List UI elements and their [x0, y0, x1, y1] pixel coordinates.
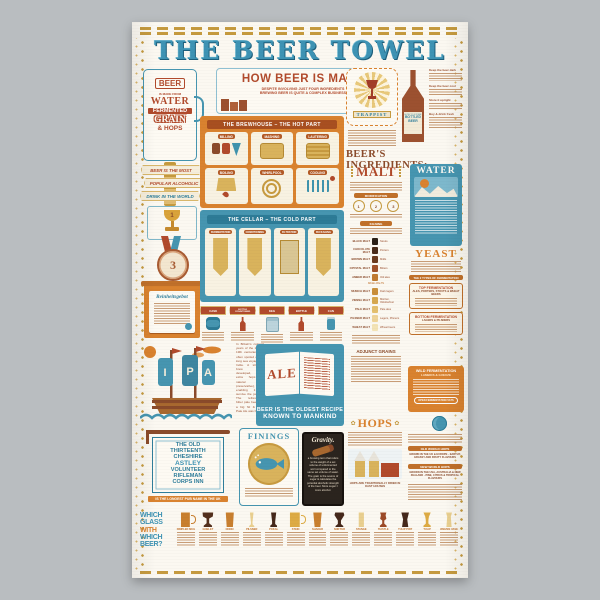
oast-caption: HOPS ARE TRADITIONALLY DRIED IN OAST HOU… — [346, 482, 404, 489]
bottom-fermentation-styles: LAGERS & PILSNERS — [411, 319, 461, 322]
malt-name: VIENNA MALT — [346, 299, 370, 302]
malt-style: Pale ales — [380, 308, 404, 311]
glass-item: GOBLET — [197, 510, 219, 546]
malt-word: MALT — [356, 164, 396, 180]
gravity-text: a brewing term that refers to the weight… — [307, 457, 339, 492]
conditioning-tank-icon — [247, 238, 262, 276]
step-number: 2 — [375, 204, 377, 209]
mountains-icon — [414, 186, 458, 197]
chalice-icon — [364, 79, 380, 101]
cellar-step-packaging: PACKAGING — [308, 228, 339, 296]
malt-style: Porters — [380, 249, 404, 252]
plinth: Reinheitsgebot — [144, 284, 200, 338]
malt-swatch — [372, 238, 378, 245]
trophy-base — [165, 227, 179, 231]
malt-row: MUNICH MALTDark lagers — [346, 287, 406, 296]
step-number: 1 — [358, 204, 360, 209]
top-fermentation-box: TOP FERMENTATION ALES, PORTERS, STOUTS &… — [409, 283, 463, 309]
glasses-heading-line: WITH — [140, 527, 173, 534]
sail-letter: A — [204, 367, 212, 379]
hop-cone-icon: ✿ — [394, 420, 399, 427]
oast-tower — [355, 461, 365, 477]
bottom-fermentation-box: BOTTOM FERMENTATION LAGERS & PILSNERS — [409, 312, 463, 335]
brewhouse-title: THE BREWHOUSE – THE HOT PART — [207, 120, 337, 129]
new-world-flavour: PINE, CITRUS & TROPICAL FLAVOURS — [425, 474, 459, 480]
glasses-heading-line: BEER? — [140, 541, 173, 548]
micro-text — [429, 117, 462, 129]
micro-text — [320, 332, 342, 342]
trophy-number: 1 — [170, 213, 173, 219]
seal-badge — [185, 323, 192, 330]
gravity-title: Gravity. — [304, 436, 342, 444]
bottle-icon — [240, 317, 246, 331]
sun-icon — [420, 179, 429, 188]
glasses-heading-line: WHICH — [140, 512, 173, 519]
towel-title: THE BEER TOWEL — [146, 36, 454, 65]
brewery-factory-icon — [221, 99, 251, 111]
step-label: BOILING — [218, 170, 235, 175]
wheat-sprig-icon — [351, 166, 354, 178]
micro-text — [415, 298, 457, 306]
finings-panel: FININGS — [239, 428, 299, 506]
glass-item: PILSNER — [241, 510, 263, 546]
malt-swatch — [372, 256, 378, 263]
packaging-label: CAN — [318, 306, 344, 315]
photo-background: THE BEER TOWEL BEER IS MADE FROM WATER F… — [0, 0, 600, 600]
globe-icon — [432, 416, 447, 431]
glasses-heading: WHICH GLASS WITH WHICH BEER? — [140, 512, 173, 549]
trophy-bowl: 1 — [164, 210, 180, 221]
glass-name: PILSNER — [241, 529, 263, 532]
glass-name: POKAL — [263, 529, 285, 532]
micro-text — [350, 228, 402, 234]
malt-style: Lagers, Pilsners — [380, 317, 404, 320]
storage-tip: Store it upright — [429, 98, 462, 109]
gravity-bottle-icon — [311, 444, 334, 457]
micro-text — [290, 332, 312, 342]
micro-text — [350, 214, 402, 219]
tip-header: Store it upright — [429, 98, 462, 102]
micro-text — [199, 532, 217, 546]
glass-item: DIMPLED MUG — [175, 510, 197, 546]
bottle-label-main: BOTTLED BEER — [404, 116, 422, 123]
malt-style: Bitters — [380, 267, 404, 270]
malt-name: BLACK MALT — [346, 240, 370, 243]
bottle-icon — [298, 317, 304, 331]
step-circle: 2 — [370, 200, 382, 212]
ribbon-world: DRINK IN THE WORLD — [140, 191, 200, 201]
micro-text — [440, 532, 458, 546]
packaging-label: KEG — [259, 306, 285, 315]
beer-ingredients-mug-lockup: BEER IS MADE FROM WATER FERMENTED GRAIN … — [143, 69, 197, 161]
packaging-label: CASK — [200, 306, 226, 315]
micro-text — [261, 334, 283, 344]
malt-swatch — [372, 315, 378, 322]
mug-word-beer: BEER — [155, 78, 185, 89]
medal-number: 3 — [170, 258, 176, 273]
malt-sacks-icon — [212, 143, 241, 156]
kilning-banner: KILNING — [360, 221, 392, 226]
micro-text — [418, 532, 436, 546]
brewhouse-grid: MILLING MASHING LAUTERING BOILING — [205, 132, 339, 204]
step-label: MASHING — [262, 134, 281, 139]
malt-row: BROWN MALTMilds — [346, 255, 406, 264]
trophy-icon: 1 — [161, 207, 183, 239]
step-number: 3 — [392, 204, 394, 209]
top-fermentation-styles: ALES, PORTERS, STOUTS & WHEAT BEERS — [411, 290, 461, 296]
ipa-panel: I P A In Britain's colonial years of the… — [140, 340, 264, 428]
micro-text — [352, 532, 370, 546]
border-dashes-top-1 — [140, 27, 460, 30]
malt-style: Stouts — [380, 240, 404, 243]
water-panel: WATER — [410, 164, 462, 246]
gravity-panel: Gravity. a brewing term that refers to t… — [302, 432, 344, 506]
border-dashes-bottom — [140, 571, 460, 574]
sail-letter: P — [186, 366, 193, 378]
scroll: Reinheitsgebot — [149, 291, 195, 333]
pub-line: ASTLEY — [153, 460, 223, 467]
malt-name: CHOCOLATE MALT — [346, 248, 370, 254]
glass-item: POKAL — [263, 510, 285, 546]
malt-row: VIENNA MALTMärzen, Oktoberfest — [346, 296, 406, 305]
tip-header: Buy & drink fresh — [429, 112, 462, 116]
micro-text — [413, 379, 459, 395]
step-label: MILLING — [218, 134, 235, 139]
oast-roof — [354, 451, 366, 461]
glass-item: WEIZEN VASE — [438, 510, 460, 546]
tip-header: Keep the beer cool — [429, 84, 462, 88]
brewhouse-step-milling: MILLING — [205, 132, 248, 165]
brewhouse-step-lautering: LAUTERING — [296, 132, 339, 165]
book-page-left: ALE — [265, 352, 299, 396]
tip-header: Keep the beer dark — [429, 68, 462, 72]
micro-text — [350, 182, 402, 191]
packaging-label: BOTTLE — [288, 306, 314, 315]
glass-item: NONIC — [219, 510, 241, 546]
micro-text — [154, 303, 190, 325]
yeast-word: YEAST — [408, 248, 464, 260]
glass-item: TULIP PINT — [394, 510, 416, 546]
malt-row: WHEAT MALTWheat beers — [346, 323, 406, 332]
yeast-panel: YEAST THE 2 TYPES OF FERMENTATION TOP FE… — [408, 248, 464, 362]
hops-word: HOPS — [358, 416, 393, 431]
hops-word-row: ✿ HOPS ✿ — [346, 416, 404, 431]
glass-name: STANGE — [350, 529, 372, 532]
glass-name: WEIZEN VASE — [438, 529, 460, 532]
packaging-can: CAN — [318, 306, 344, 342]
ribbon-popular: POPULAR ALCOHOLIC — [144, 178, 204, 188]
new-world-hops-sub: GROWN IN THE USA, AUSTRALIA & NEW ZEALAN… — [408, 471, 462, 481]
step-label: PACKAGING — [314, 230, 333, 234]
micro-text — [304, 357, 330, 391]
malt-word-row: MALT — [346, 164, 406, 180]
old-world-hops-banner: OLD WORLD HOPS — [408, 446, 462, 451]
glass-name: THISTLE — [372, 529, 394, 532]
micro-text — [177, 532, 195, 546]
glass-name: SNIFTER — [328, 529, 350, 532]
malt-name: WHEAT MALT — [346, 326, 370, 329]
mug-word-grain: GRAIN — [144, 115, 196, 125]
whirlpool-icon — [262, 179, 281, 198]
medal: 3 — [155, 236, 187, 282]
step-label: COOLING — [308, 170, 327, 175]
malt-swatch — [372, 324, 378, 331]
modification-steps: 1 2 3 — [350, 200, 402, 212]
step-label: LAUTERING — [306, 134, 329, 139]
sign-board: THE OLD THIRTEENTH CHESHIRE ASTLEY VOLUN… — [152, 437, 224, 493]
malt-column: MALT MODIFICATION 1 2 3 KILNING BLACK MA… — [346, 164, 406, 414]
trophy-frame: 1 — [147, 206, 197, 240]
micro-text — [351, 356, 401, 382]
ale-caption-2: KNOWN TO MANKIND — [256, 413, 344, 420]
fish-icon — [252, 454, 286, 474]
malt-style: Old ales — [380, 276, 404, 279]
malt-name: BROWN MALT — [346, 258, 370, 261]
malt-row: BLACK MALTStouts — [346, 237, 406, 246]
hop-dot-icon — [330, 176, 335, 181]
pub-caption: IS THE LONGEST PUB NAME IN THE UK — [148, 496, 228, 502]
finings-title: FININGS — [240, 431, 298, 441]
wild-fermentation-sub: LAMBICS & GUEUZE — [408, 373, 464, 377]
glass-name: TULIP PINT — [394, 529, 416, 532]
oast-tower — [369, 461, 379, 477]
brewhouse-step-cooling: COOLING — [296, 168, 339, 204]
brewhouse-step-mashing: MASHING — [251, 132, 294, 165]
packaging-keg: KEG — [259, 306, 285, 342]
hops-section: ✿ HOPS ✿ HOPS ARE TRADITIONALLY DRIED IN… — [346, 416, 464, 504]
mountain-scene — [414, 177, 458, 197]
micro-text — [265, 532, 283, 546]
mug-word-hops: & HOPS — [144, 125, 196, 132]
storage-tip: Keep the beer dark — [429, 68, 462, 81]
malt-row: PALE MALTPale ales — [346, 305, 406, 314]
cooling-coil-icon — [307, 180, 329, 192]
keg-icon — [266, 317, 279, 332]
packaging-pennant-icon — [316, 238, 331, 276]
glass-name: GOBLET — [197, 529, 219, 532]
step-circle: 1 — [353, 200, 365, 212]
sign-bracket — [146, 430, 230, 434]
ribbon-most: BEER IS THE MOST — [141, 165, 201, 175]
packaging-bottle-conditioned: BOTTLE CONDITIONED — [229, 306, 255, 342]
step-label: CONDITIONING — [244, 230, 266, 234]
glass-item: SHAKER — [307, 510, 329, 546]
lauter-tun-icon — [306, 143, 330, 159]
cask-icon — [206, 317, 220, 330]
mash-tun-icon — [260, 143, 284, 159]
micro-text — [348, 130, 396, 146]
beer-bottle-illustration: HOW TO STORE BOTTLED BEER — [402, 70, 424, 142]
wheat-sprig-icon — [399, 166, 402, 178]
border-dashes-top-2 — [140, 32, 460, 35]
cellar-title: THE CELLAR – THE COLD PART — [207, 215, 337, 224]
cellar-panel: THE CELLAR – THE COLD PART FERMENTATION … — [200, 210, 344, 302]
ale-word: ALE — [267, 365, 297, 383]
step-label: FILTRATION — [280, 230, 299, 234]
sign-post — [146, 430, 149, 444]
trappist-badge: TRAPPIST — [346, 68, 398, 126]
sail-letter: I — [163, 367, 166, 379]
storage-tip: Buy & drink fresh — [429, 112, 462, 129]
micro-text — [408, 484, 462, 500]
storage-tip: Keep the beer cool — [429, 84, 462, 95]
flame-icon — [222, 191, 230, 199]
malt-swatch — [372, 306, 378, 313]
glasses-row: DIMPLED MUG GOBLET NONIC PILSNER POKAL S… — [175, 510, 460, 546]
malt-style: Märzen, Oktoberfest — [380, 298, 404, 304]
malt-swatch — [372, 247, 378, 254]
micro-text — [348, 432, 402, 446]
modification-banner: MODIFICATION — [354, 193, 398, 198]
water-word: WATER — [410, 166, 462, 176]
micro-text — [415, 200, 457, 234]
factory-block — [230, 102, 238, 111]
filter-icon — [280, 240, 299, 274]
glasses-heading-line: WHICH — [140, 534, 173, 541]
malt-swatch — [372, 274, 378, 281]
micro-text — [415, 324, 457, 332]
packaging-label: BOTTLE CONDITIONED — [229, 306, 255, 315]
glasses-heading-line: GLASS — [140, 519, 173, 526]
glass-name: SHAKER — [307, 529, 329, 532]
oast-house-illustration — [348, 449, 402, 479]
oast-roof — [368, 451, 380, 461]
scroll-title: Reinheitsgebot — [149, 294, 195, 300]
brewhouse-step-whirlpool: WHIRLPOOL — [251, 168, 294, 204]
glass-item: SNIFTER — [328, 510, 350, 546]
micro-text — [330, 532, 348, 546]
micro-text — [245, 488, 293, 497]
new-world-hops-banner: NEW WORLD HOPS — [408, 464, 462, 469]
micro-text — [221, 532, 239, 546]
adjunct-grains-heading: ADJUNCT GRAINS — [346, 349, 406, 354]
micro-text — [243, 532, 261, 546]
mug-word-fermented: FERMENTED — [148, 108, 192, 114]
tea-towel: THE BEER TOWEL BEER IS MADE FROM WATER F… — [132, 22, 468, 578]
open-book: ALE — [265, 353, 335, 395]
malt-name: CRYSTAL MALT — [346, 267, 370, 270]
medal-disc: 3 — [157, 249, 189, 281]
open-vats-pill: OPEN FERMENTATION VATS — [414, 397, 458, 404]
brewhouse-panel: THE BREWHOUSE – THE HOT PART MILLING MAS… — [200, 116, 344, 208]
malt-row: CRYSTAL MALTBitters — [346, 264, 406, 273]
old-world-hops-sub: GROWN IN THE UK & EUROPE · EARTHY, GRASS… — [408, 453, 462, 459]
glasses-section: WHICH GLASS WITH WHICH BEER? DIMPLED MUG… — [140, 510, 460, 568]
glass-name: TULIP — [416, 529, 438, 532]
sunburst — [354, 72, 390, 108]
malt-row: CHOCOLATE MALTPorters — [346, 246, 406, 255]
malt-name: AMBER MALT — [346, 276, 370, 279]
micro-text — [429, 73, 462, 81]
glass-item: TULIP — [416, 510, 438, 546]
malt-table: BLACK MALTStouts CHOCOLATE MALTPorters B… — [346, 237, 406, 332]
step-label: FERMENTATION — [209, 230, 233, 234]
malt-name: MUNICH MALT — [346, 290, 370, 293]
cellar-step-fermentation: FERMENTATION — [205, 228, 236, 296]
glass-item: THISTLE — [372, 510, 394, 546]
micro-text — [429, 89, 462, 95]
malt-name: PALE MALT — [346, 308, 370, 311]
ipa-ship-illustration: I P A — [140, 342, 232, 426]
bottle-label: HOW TO STORE BOTTLED BEER — [404, 112, 422, 134]
glass-item: STEIN — [285, 510, 307, 546]
micro-text — [374, 532, 392, 546]
malt-style: Dark lagers — [380, 290, 404, 293]
ale-caption: BEER IS THE OLDEST RECIPE KNOWN TO MANKI… — [256, 407, 344, 420]
malt-swatch — [372, 288, 378, 295]
cellar-step-conditioning: CONDITIONING — [239, 228, 270, 296]
packaging-bottle: BOTTLE — [288, 306, 314, 342]
micro-text — [411, 261, 461, 273]
packaging-cask: CASK — [200, 306, 226, 342]
packaging-row: CASK BOTTLE CONDITIONED KEG BOTTLE CAN — [200, 306, 344, 342]
bottled-beer-storage: HOW TO STORE BOTTLED BEER Keep the beer … — [402, 66, 462, 148]
mug-word-water: WATER — [144, 96, 196, 107]
malt-style: Wheat beers — [380, 326, 404, 329]
barn — [381, 463, 399, 477]
factory-block — [221, 99, 229, 111]
malt-style: Milds — [380, 258, 404, 261]
pub-sign: THE OLD THIRTEENTH CHESHIRE ASTLEY VOLUN… — [140, 430, 236, 506]
factory-block — [239, 100, 247, 111]
brewhouse-step-boiling: BOILING — [205, 168, 248, 204]
hop-cone-icon: ✿ — [351, 420, 356, 427]
micro-text — [408, 434, 462, 443]
micro-text — [309, 532, 327, 546]
micro-text — [287, 532, 305, 546]
step-circle: 3 — [387, 200, 399, 212]
book-page-right — [300, 352, 334, 396]
micro-text — [352, 335, 400, 345]
can-icon — [327, 317, 335, 330]
fishbowl — [248, 443, 290, 485]
fermentation-types-banner: THE 2 TYPES OF FERMENTATION — [409, 275, 463, 280]
micro-text — [396, 532, 414, 546]
micro-text — [429, 103, 462, 109]
glass-name: DIMPLED MUG — [175, 529, 197, 532]
ale-panel: ALE BEER IS THE OLDEST RECIPE KNOWN TO M… — [256, 344, 344, 426]
plinth-top-band — [141, 281, 203, 286]
kettle-icon — [216, 178, 236, 191]
step-label: WHIRLPOOL — [260, 170, 283, 175]
cellar-grid: FERMENTATION CONDITIONING FILTRATION PAC… — [205, 228, 339, 296]
malt-row: PILSNER MALTLagers, Pilsners — [346, 314, 406, 323]
malt-swatch — [372, 265, 378, 272]
pub-line: CORPS INN — [153, 479, 223, 485]
trappist-ribbon: TRAPPIST — [353, 111, 391, 118]
malt-name: PILSNER MALT — [346, 317, 370, 320]
fermenter-icon — [213, 238, 228, 276]
malt-swatch — [372, 297, 378, 304]
glass-name: NONIC — [219, 529, 241, 532]
storage-tips: Keep the beer dark Keep the beer cool St… — [429, 68, 462, 129]
glass-item: STANGE — [350, 510, 372, 546]
wild-fermentation-box: WILD FERMENTATION LAMBICS & GUEUZE OPEN … — [408, 366, 464, 412]
cellar-step-filtration: FILTRATION — [274, 228, 305, 296]
glass-name: STEIN — [285, 529, 307, 532]
